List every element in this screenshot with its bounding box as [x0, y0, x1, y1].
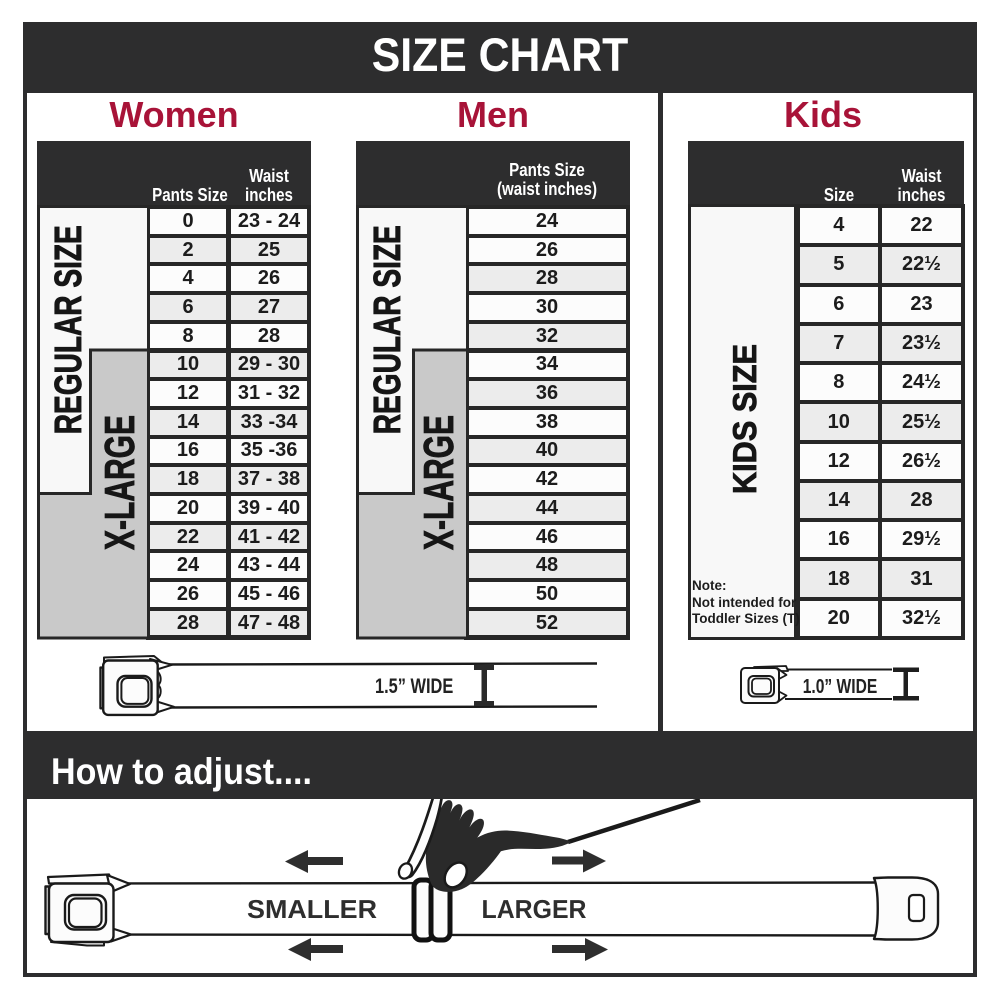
- svg-text:REGULAR SIZE: REGULAR SIZE: [48, 225, 90, 434]
- svg-text:X-LARGE: X-LARGE: [96, 415, 143, 550]
- svg-text:X-LARGE: X-LARGE: [415, 415, 462, 550]
- svg-text:REGULAR SIZE: REGULAR SIZE: [367, 225, 409, 434]
- svg-text:KIDS SIZE: KIDS SIZE: [726, 344, 763, 494]
- svg-text:LARGER: LARGER: [482, 894, 587, 924]
- svg-text:SMALLER: SMALLER: [247, 894, 377, 924]
